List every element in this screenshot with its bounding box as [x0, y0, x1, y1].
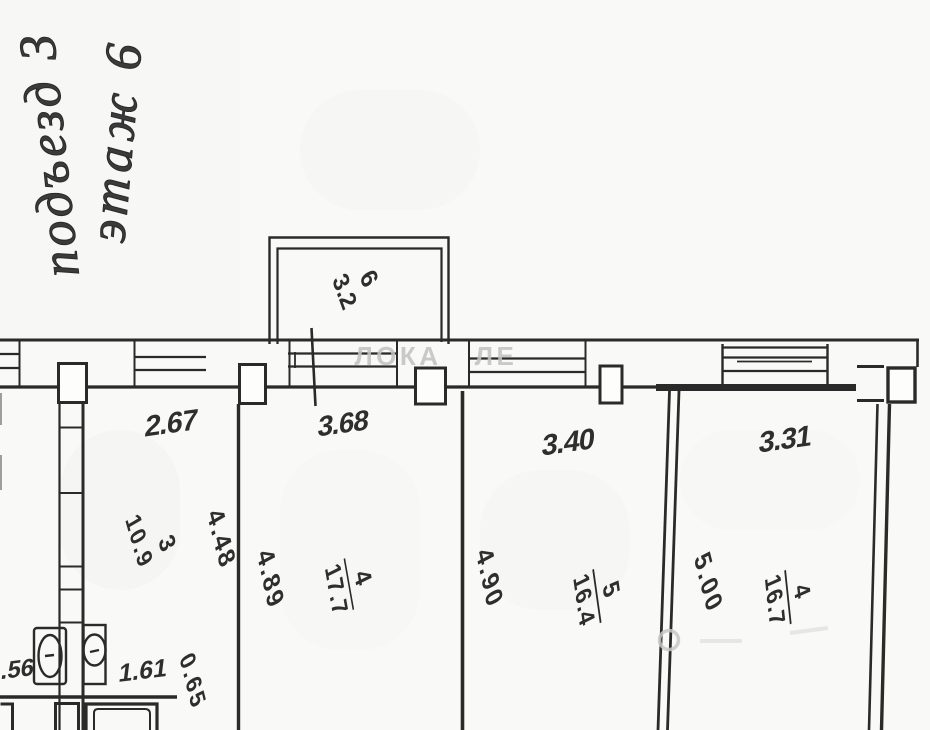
svg-text:ЛОКА: ЛОКА — [354, 341, 441, 371]
svg-text:16.7: 16.7 — [760, 570, 790, 631]
svg-text:ЛЕ: ЛЕ — [475, 341, 518, 371]
